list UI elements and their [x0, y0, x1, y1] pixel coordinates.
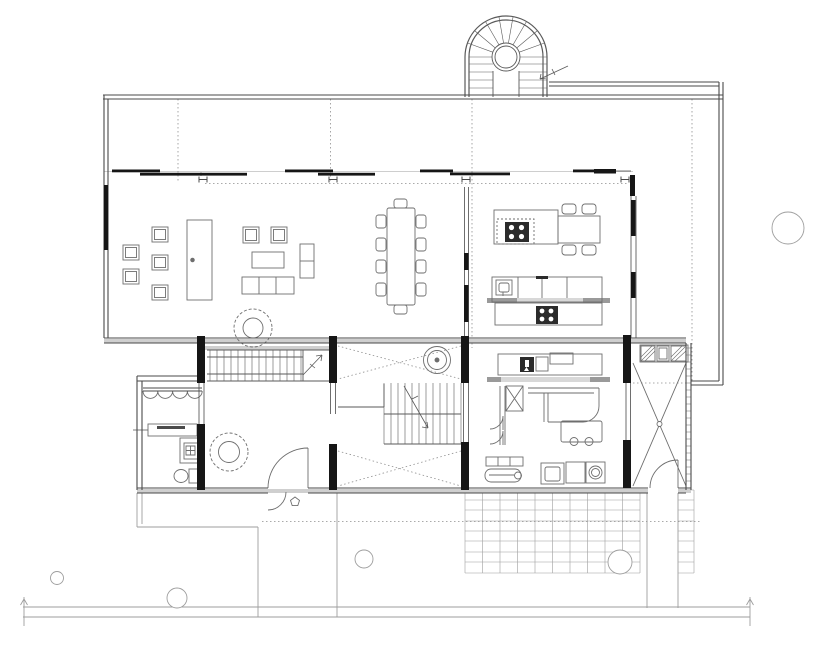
garden-path-left	[258, 493, 337, 617]
storage-east-wall	[686, 343, 691, 490]
entry-bottom-band	[137, 489, 330, 493]
hall-sidelight-1	[331, 383, 336, 414]
burner	[549, 317, 554, 322]
sliding-panel	[573, 170, 613, 173]
wall-bands	[104, 298, 691, 493]
entry-outer-swing	[268, 492, 286, 510]
wall-pier	[329, 444, 337, 490]
armchair-cushion	[155, 230, 166, 240]
kitchen-east-window-wall	[616, 171, 636, 338]
bathroom-fittings	[133, 424, 202, 483]
storage-door-leaf	[650, 460, 678, 488]
dining-chair	[416, 260, 426, 273]
spiral-stair-direction-arrow	[540, 66, 568, 79]
burner	[519, 234, 524, 239]
kitchen-chair	[562, 245, 576, 255]
mullion-h-mark	[621, 177, 629, 183]
dining-chair	[376, 260, 386, 273]
main-stair-landing	[338, 384, 384, 407]
partition-frame-segment	[464, 253, 469, 270]
main-stair-arrow	[404, 386, 428, 428]
survey-tick-left	[21, 597, 28, 626]
burner	[509, 225, 514, 230]
shelf-hatch	[671, 346, 686, 361]
entry-door-leaf	[268, 448, 308, 488]
south-wall-band	[104, 339, 686, 343]
kitchen-counter-lower	[498, 353, 602, 375]
main-bottom-band	[330, 489, 648, 493]
cart-wheel	[585, 438, 593, 446]
console-table	[187, 220, 212, 300]
upper-stair-treads	[210, 350, 301, 381]
main-stair	[338, 383, 461, 444]
armchair-cushion	[155, 258, 166, 268]
piers-layer	[104, 169, 636, 490]
toilet-tank	[189, 469, 198, 483]
armchair-cushion	[246, 230, 257, 241]
chaise	[485, 469, 521, 482]
tree	[51, 572, 64, 585]
window-frame-segment	[631, 272, 636, 298]
spiral-stair-core	[492, 43, 520, 71]
patio-grid	[465, 490, 694, 573]
sliding-panel	[112, 170, 160, 173]
main-stair-treads	[384, 383, 461, 444]
floor-plan-drawing	[0, 0, 825, 648]
kitchen-chair	[562, 204, 576, 214]
counter-dark-dash	[536, 276, 548, 279]
tree	[355, 550, 373, 568]
dark-fixtures-layer	[505, 222, 558, 372]
tree	[608, 550, 632, 574]
breakfast-table	[558, 216, 600, 243]
north-parapet	[549, 82, 719, 86]
cooktop-icon	[536, 306, 558, 324]
coffee-table	[252, 252, 284, 268]
console-table-knob	[191, 258, 195, 262]
light-symbol	[291, 497, 300, 506]
wall-pier	[329, 336, 337, 383]
mullion-h-mark	[199, 177, 207, 183]
sink-2	[536, 357, 548, 371]
window-frame-segment	[631, 200, 636, 236]
stair-top-band	[205, 346, 330, 350]
pantry-sidelight	[626, 382, 631, 440]
dining-chair	[376, 238, 386, 251]
wall-pier	[461, 336, 469, 383]
burner	[540, 317, 545, 322]
coat-closet-wall	[143, 388, 202, 391]
washing-machine-drum	[589, 466, 602, 479]
toilet-bowl	[174, 470, 188, 483]
column-grid-lines	[178, 99, 692, 381]
cooktop-icon	[505, 222, 529, 242]
l-counter	[528, 388, 599, 422]
ceiling-feature-inner	[219, 442, 240, 463]
dining-chair	[376, 215, 386, 228]
sink-faucet	[525, 360, 529, 367]
spiral-stair	[465, 16, 568, 97]
washing-machine-drum-inner	[592, 469, 600, 477]
spiral-stair-well-walls	[493, 71, 519, 97]
sliding-window-panels	[112, 170, 613, 176]
spiral-stair-core-inner	[495, 46, 517, 68]
armchair-cushion	[126, 248, 137, 258]
sliding-panel	[200, 173, 247, 176]
hall-sidelight-2	[464, 383, 469, 442]
mullion-h-mark	[329, 177, 337, 183]
wood-stove-body	[243, 318, 263, 338]
band-cap	[590, 377, 610, 382]
survey-tick-right	[747, 597, 754, 626]
dining-table	[387, 208, 415, 305]
appliance-top	[550, 353, 573, 364]
brace-pin	[657, 422, 662, 427]
armchair-cushion	[274, 230, 285, 241]
partition-frame-segment	[464, 285, 469, 322]
appliance-b	[566, 462, 585, 483]
dining-chair	[376, 283, 386, 296]
counter-divisions	[518, 277, 567, 298]
pantry-wall-lines	[500, 386, 505, 445]
sliding-panel	[318, 173, 375, 176]
vanity-counter	[148, 424, 197, 436]
sliding-panel	[450, 173, 510, 176]
sofa-set	[242, 227, 314, 294]
dining-chair	[394, 199, 407, 208]
upper-stair-arrow	[303, 355, 322, 375]
tall-cabinet-cross	[506, 386, 523, 411]
shelf-hatch	[641, 346, 655, 361]
round-basin	[424, 347, 451, 374]
mullion-h-mark	[462, 177, 470, 183]
sofa	[242, 277, 294, 294]
window-mullion-marks	[199, 177, 629, 183]
shower-drain-cross	[186, 446, 195, 455]
wall-pier	[623, 440, 631, 488]
sink	[496, 280, 512, 295]
low-shelf	[486, 457, 523, 466]
west-wall-solid-segment	[104, 185, 108, 250]
armchair-cushion	[155, 288, 166, 298]
dark-sink-icon	[520, 357, 534, 372]
double-doors	[490, 416, 503, 445]
armchair-cushion	[126, 272, 137, 282]
pantry-fittings	[485, 386, 605, 484]
east-step-wall	[691, 381, 723, 385]
chaise-knob	[515, 472, 522, 479]
dining-chair	[416, 283, 426, 296]
storage-shelf-box-inner	[659, 348, 667, 359]
dining-chair	[416, 215, 426, 228]
ceiling-feature	[210, 433, 248, 471]
garden-path-right	[647, 493, 678, 608]
sliding-panel	[140, 173, 202, 176]
bath-door-sidelight	[199, 383, 204, 424]
dining-set	[376, 199, 426, 314]
sink-basin	[499, 283, 509, 292]
furniture-layer	[123, 199, 691, 510]
window-corner-segment	[630, 175, 635, 196]
appliance-a-door	[545, 467, 560, 481]
east-wall	[719, 82, 723, 385]
kitchen-chair	[582, 204, 596, 214]
vanity-backsplash	[157, 426, 185, 429]
sliding-panel	[420, 170, 453, 173]
wall-pier	[197, 336, 205, 383]
spiral-stair-outer-wall	[465, 16, 547, 97]
storage-room-fittings	[633, 345, 691, 488]
upper-straight-stair	[207, 350, 330, 381]
coat-hooks	[143, 391, 202, 398]
cooktop-body	[505, 222, 529, 242]
storage-wall-ticks	[686, 348, 691, 488]
walls-layer	[103, 82, 723, 493]
utility-cart	[561, 421, 602, 442]
terrace-step-outline	[137, 493, 258, 527]
low-shelf-divisions	[498, 457, 510, 466]
dining-chair	[416, 238, 426, 251]
sofa-seat-divisions	[259, 277, 276, 294]
cooktop-body	[536, 306, 558, 324]
burner	[509, 234, 514, 239]
dotted-layer	[178, 99, 700, 522]
burner	[549, 309, 554, 314]
basin-drain	[435, 358, 439, 362]
cart-wheel	[570, 438, 578, 446]
armchair-group	[123, 227, 168, 300]
dining-chair	[394, 305, 407, 314]
floor-plan-page	[0, 0, 825, 648]
tree	[167, 588, 187, 608]
void-cross-lower	[338, 451, 461, 486]
main-bottom-band-right	[678, 489, 691, 493]
sliding-panel	[285, 170, 333, 173]
north-wall	[103, 95, 723, 99]
street-edge-lines	[23, 607, 750, 617]
burner	[540, 309, 545, 314]
kitchen-chair	[582, 245, 596, 255]
void-cross-upper	[338, 346, 461, 379]
wall-pier	[461, 442, 469, 490]
tree	[772, 212, 804, 244]
burner	[519, 225, 524, 230]
band-cap	[487, 377, 501, 382]
wall-pier	[197, 424, 205, 490]
wall-pier	[623, 335, 631, 383]
